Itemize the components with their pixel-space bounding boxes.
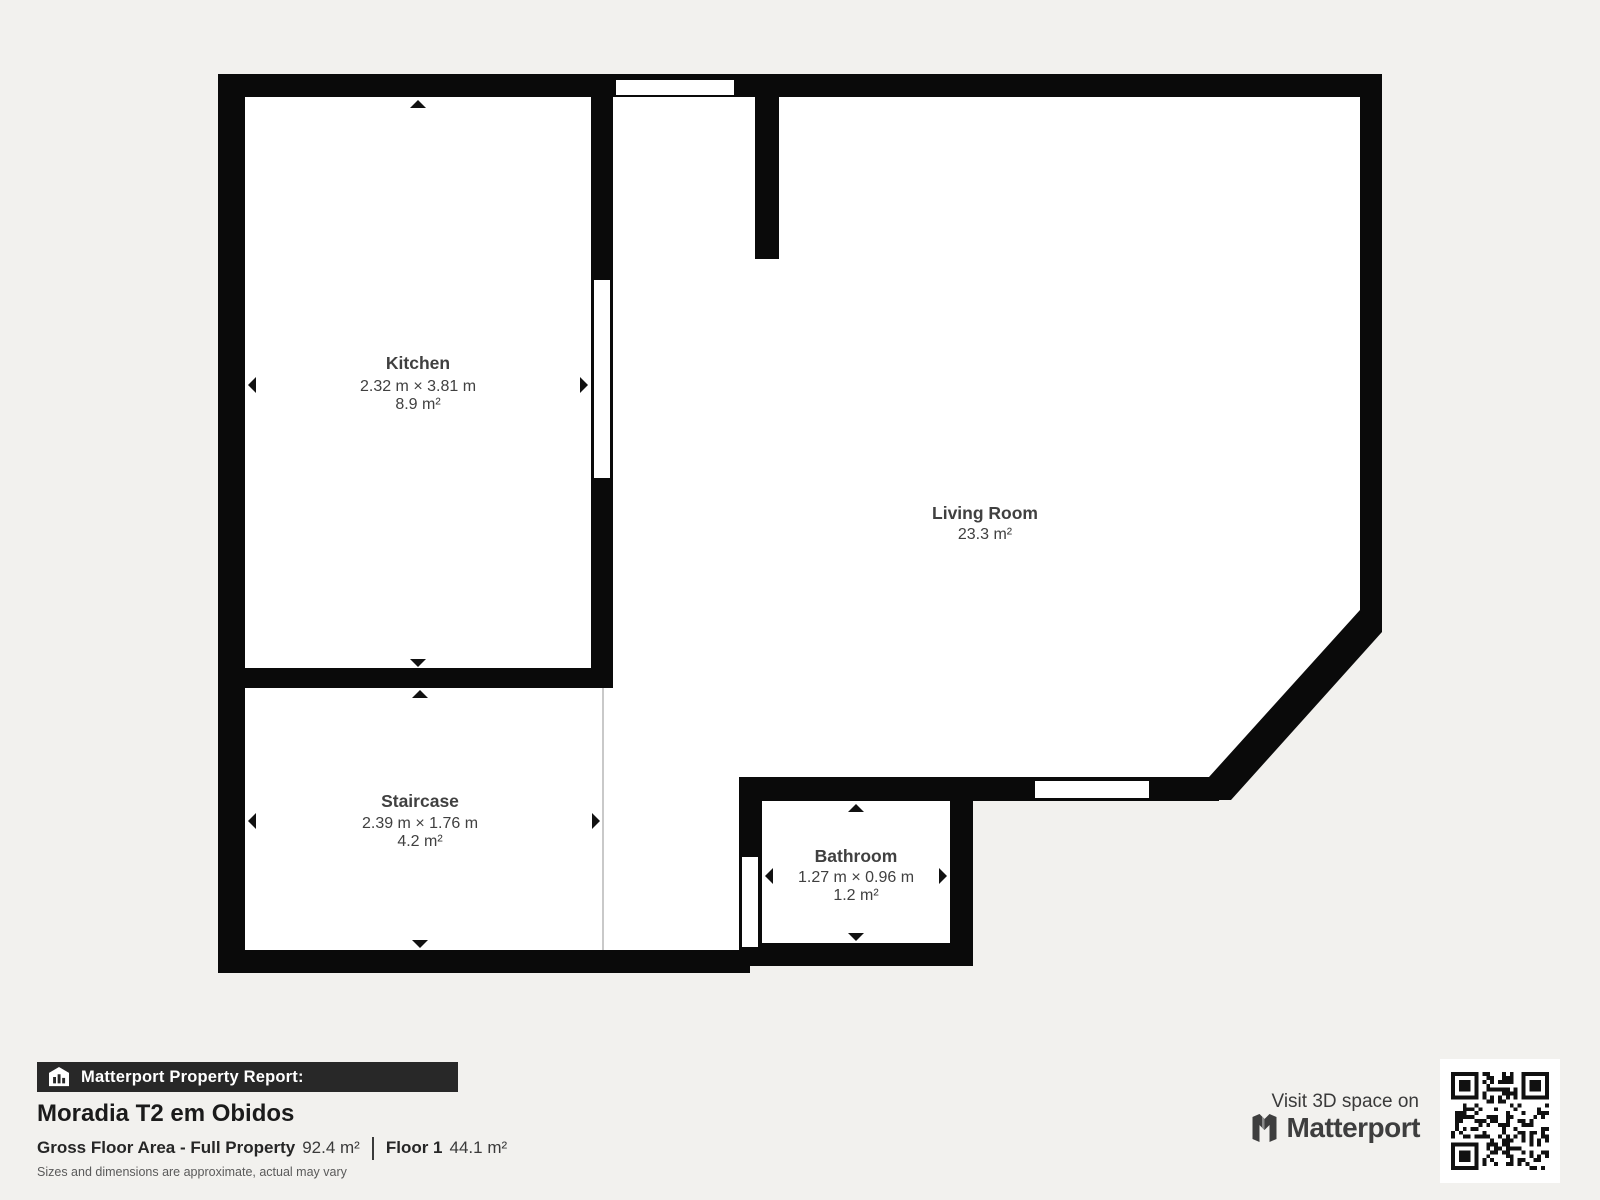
qr-code-pattern xyxy=(1451,1072,1549,1170)
bathroom-dimensions: 1.27 m × 0.96 m xyxy=(798,869,914,886)
top-wall-window xyxy=(616,80,734,95)
report-stats: Gross Floor Area - Full Property 92.4 m²… xyxy=(37,1136,507,1160)
report-bar-label: Matterport Property Report: xyxy=(81,1068,304,1087)
bathroom-name: Bathroom xyxy=(815,846,898,866)
living-room-name: Living Room xyxy=(932,503,1038,523)
floor-label: Floor 1 xyxy=(386,1138,443,1158)
house-report-icon xyxy=(48,1067,70,1087)
qr-code xyxy=(1440,1059,1560,1183)
living-room-entry-wall xyxy=(755,97,779,259)
stats-divider xyxy=(372,1137,374,1160)
staircase-dimensions: 2.39 m × 1.76 m xyxy=(362,815,478,832)
kitchen-door-opening xyxy=(594,280,610,478)
visit-3d-space-text: Visit 3D space on xyxy=(1271,1091,1419,1113)
matterport-m-icon xyxy=(1251,1113,1278,1143)
kitchen-staircase-divider-wall xyxy=(245,668,613,688)
report-header-bar: Matterport Property Report: xyxy=(37,1062,458,1092)
floor-plan: Kitchen 2.32 m × 3.81 m 8.9 m² Living Ro… xyxy=(0,0,1600,1200)
staircase-name: Staircase xyxy=(381,791,459,811)
bathroom-area: 1.2 m² xyxy=(833,887,879,904)
kitchen-name: Kitchen xyxy=(386,353,450,373)
matterport-logo: Matterport xyxy=(1251,1113,1420,1143)
kitchen-dimensions: 2.32 m × 3.81 m xyxy=(360,378,476,395)
disclaimer-text: Sizes and dimensions are approximate, ac… xyxy=(37,1165,347,1179)
staircase-area: 4.2 m² xyxy=(397,833,443,850)
kitchen-area: 8.9 m² xyxy=(395,396,441,413)
living-room-area: 23.3 m² xyxy=(958,526,1013,543)
property-title: Moradia T2 em Obidos xyxy=(37,1100,294,1128)
gross-floor-area-value: 92.4 m² xyxy=(302,1138,360,1158)
gross-floor-area-label: Gross Floor Area - Full Property xyxy=(37,1138,295,1158)
living-room-window xyxy=(1035,781,1149,798)
bathroom-door-opening xyxy=(742,857,758,947)
matterport-wordmark: Matterport xyxy=(1287,1113,1420,1143)
floor-value: 44.1 m² xyxy=(450,1138,508,1158)
